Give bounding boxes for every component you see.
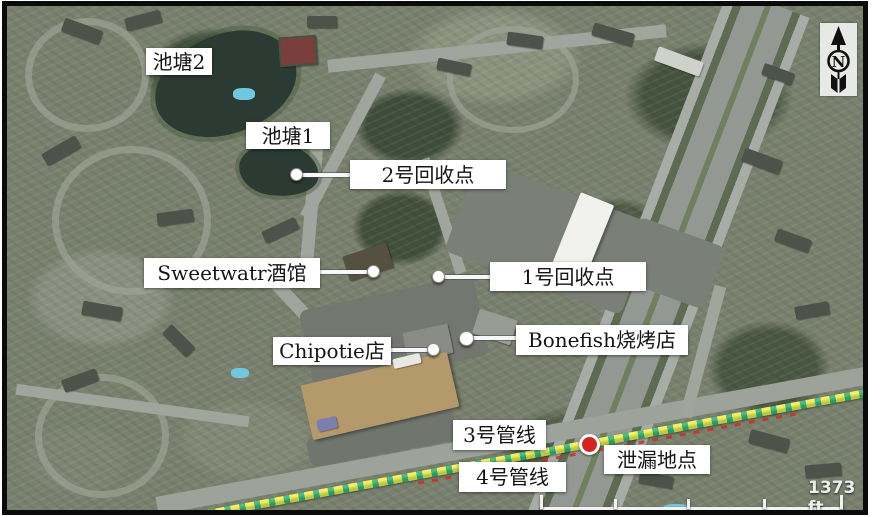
- pipeline-3-line: [156, 387, 868, 515]
- scale-bar-tick: [614, 499, 617, 509]
- marker-sweetwater: [367, 265, 380, 278]
- building: [124, 10, 162, 32]
- swimming-pool: [233, 88, 255, 100]
- label-bonefish: Bonefish烧烤店: [516, 325, 688, 355]
- label-leak-site: 泄漏地点: [604, 445, 710, 474]
- label-recovery-point-1-text: 1号回收点: [522, 267, 615, 287]
- marker-recovery-point-1: [432, 270, 445, 283]
- marker-recovery-point-2: [290, 168, 303, 181]
- label-leak-site-text: 泄漏地点: [617, 450, 697, 470]
- building: [41, 135, 81, 166]
- scale-bar-tick: [763, 499, 766, 509]
- label-recovery-point-2: 2号回收点: [350, 160, 506, 189]
- building: [654, 46, 704, 77]
- label-chipotle: Chipotie店: [273, 337, 391, 365]
- label-recovery-point-1: 1号回收点: [490, 262, 646, 291]
- building: [748, 429, 790, 453]
- leader-line-recovery2: [297, 173, 352, 177]
- scale-bar-tick: [540, 495, 543, 509]
- building: [307, 16, 337, 28]
- building: [261, 217, 299, 244]
- label-sweetwater-text: Sweetwatr酒馆: [157, 263, 306, 283]
- label-pond1: 池塘1: [246, 122, 330, 149]
- swimming-pool: [231, 368, 249, 378]
- road: [35, 374, 169, 498]
- building: [794, 301, 830, 320]
- leader-line-recovery1: [439, 275, 492, 279]
- label-pond2: 池塘2: [146, 48, 212, 75]
- building: [805, 462, 842, 478]
- marker-bonefish: [459, 331, 474, 346]
- north-arrow-icon: N: [820, 23, 857, 96]
- marker-leak-site: [579, 434, 600, 455]
- label-pipeline-3: 3号管线: [453, 420, 546, 450]
- label-sweetwater: Sweetwatr酒馆: [144, 258, 320, 288]
- label-pond1-text: 池塘1: [262, 126, 315, 146]
- marker-chipotle: [427, 343, 440, 356]
- label-pipeline-4-text: 4号管线: [476, 467, 549, 487]
- north-arrow: N: [820, 23, 857, 96]
- label-pond2-text: 池塘2: [153, 52, 206, 72]
- label-pipeline-3-text: 3号管线: [463, 425, 536, 445]
- scale-text: 1373 ft: [808, 478, 863, 515]
- north-letter: N: [832, 53, 846, 71]
- tennis-court: [278, 35, 318, 68]
- scale-bar-line: [540, 507, 843, 510]
- satellite-map: 池塘2 池塘1 2号回收点 Sweetwatr酒馆 1号回收点 Chipotie…: [2, 1, 868, 515]
- building: [81, 301, 123, 322]
- label-chipotle-text: Chipotie店: [279, 341, 385, 361]
- figure: 池塘2 池塘1 2号回收点 Sweetwatr酒馆 1号回收点 Chipotie…: [0, 0, 872, 517]
- scale-bar-tick: [687, 499, 690, 509]
- building: [162, 324, 195, 357]
- building: [774, 228, 812, 253]
- label-bonefish-text: Bonefish烧烤店: [528, 330, 676, 350]
- label-pipeline-4: 4号管线: [459, 462, 566, 492]
- label-recovery-point-2-text: 2号回收点: [382, 165, 475, 185]
